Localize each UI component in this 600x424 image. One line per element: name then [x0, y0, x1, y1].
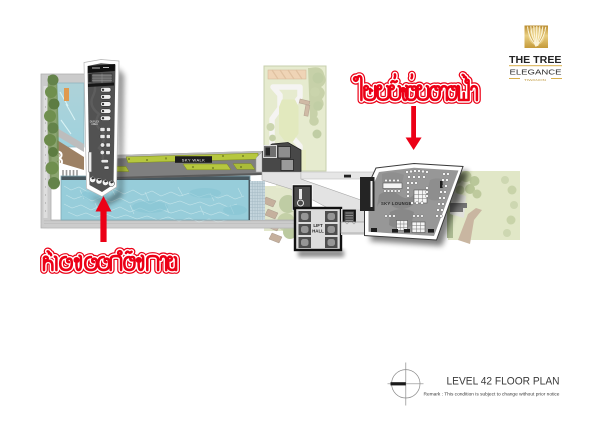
svg-text:THE TREE: THE TREE	[509, 55, 562, 66]
svg-text:AREA: AREA	[91, 123, 98, 126]
svg-text:TIWANON: TIWANON	[524, 78, 546, 82]
svg-text:ELEGANCE: ELEGANCE	[510, 68, 562, 77]
svg-text:Remark : This condition is sub: Remark : This condition is subject to ch…	[424, 391, 560, 396]
svg-text:SKY WALK: SKY WALK	[182, 157, 205, 162]
svg-text:LIFT: LIFT	[313, 223, 323, 228]
svg-text:LEVEL 42 FLOOR PLAN: LEVEL 42 FLOOR PLAN	[447, 376, 560, 388]
svg-text:SKY LOUNGE: SKY LOUNGE	[381, 201, 412, 206]
svg-text:HALL: HALL	[312, 229, 324, 234]
